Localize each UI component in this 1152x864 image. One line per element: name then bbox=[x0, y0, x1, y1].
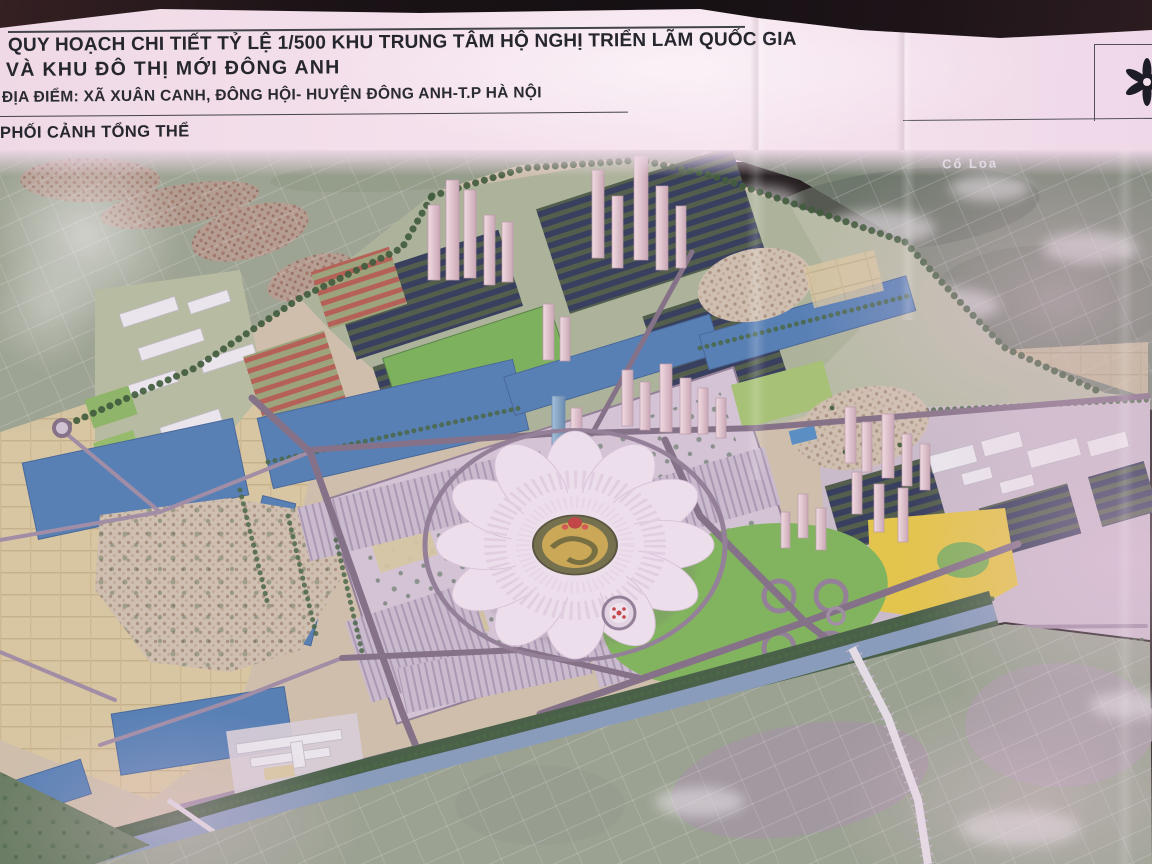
masterplan-svg bbox=[0, 150, 1152, 864]
photo-glare-and-folds bbox=[0, 150, 1152, 864]
fold-crease bbox=[750, 0, 766, 162]
poster-photo: QUY HOẠCH CHI TIẾT TỶ LỆ 1/500 KHU TRUNG… bbox=[0, 0, 1152, 864]
plan-title-line1: QUY HOẠCH CHI TIẾT TỶ LỆ 1/500 KHU TRUNG… bbox=[8, 29, 797, 57]
logo-box-border-top bbox=[1094, 44, 1152, 45]
logo-box-border bbox=[1094, 45, 1095, 121]
masterplan-rendering: Cổ Loa bbox=[0, 150, 1152, 864]
plan-title-line2: VÀ KHU ĐÔ THỊ MỚI ĐÔNG ANH bbox=[6, 56, 341, 82]
co-loa-label: Cổ Loa bbox=[942, 156, 998, 172]
pinwheel-emblem-icon bbox=[1122, 52, 1152, 112]
header-rule-mid bbox=[0, 112, 628, 117]
header-rule-mid-right bbox=[903, 118, 1152, 121]
section-label: PHỐI CẢNH TỔNG THỂ bbox=[0, 122, 190, 143]
plan-location: ĐỊA ĐIỂM: XÃ XUÂN CANH, ĐÔNG HỘI- HUYỆN … bbox=[2, 84, 542, 107]
